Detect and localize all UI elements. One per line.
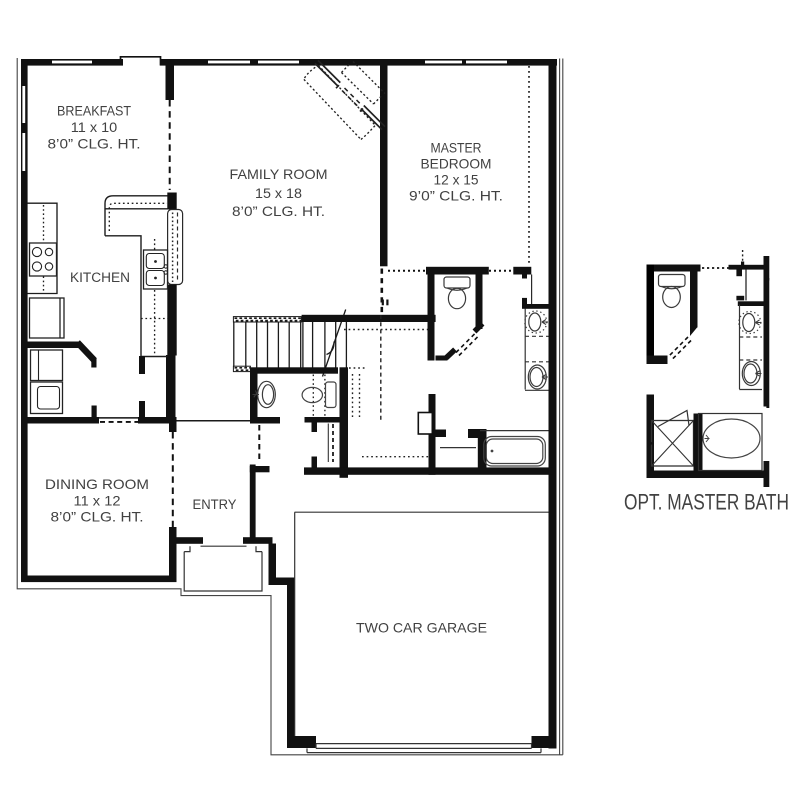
svg-text:11 x 10: 11 x 10	[71, 119, 118, 135]
svg-text:FAMILY ROOM: FAMILY ROOM	[230, 166, 328, 182]
svg-text:9’0” CLG. HT.: 9’0” CLG. HT.	[409, 188, 503, 204]
svg-text:BREAKFAST: BREAKFAST	[57, 103, 131, 119]
svg-text:OPT. MASTER BATH: OPT. MASTER BATH	[624, 490, 789, 515]
svg-text:8’0” CLG. HT.: 8’0” CLG. HT.	[51, 509, 144, 525]
svg-text:ENTRY: ENTRY	[193, 496, 238, 512]
svg-text:12 x 15: 12 x 15	[434, 172, 479, 188]
svg-text:BEDROOM: BEDROOM	[421, 156, 492, 172]
svg-text:TWO CAR GARAGE: TWO CAR GARAGE	[356, 620, 487, 636]
svg-text:11 x 12: 11 x 12	[74, 493, 121, 509]
svg-text:DINING ROOM: DINING ROOM	[45, 476, 149, 492]
svg-text:8’0” CLG. HT.: 8’0” CLG. HT.	[48, 136, 141, 152]
svg-text:15 x 18: 15 x 18	[255, 185, 302, 201]
svg-text:MASTER: MASTER	[431, 140, 482, 156]
svg-text:KITCHEN: KITCHEN	[70, 270, 130, 285]
svg-text:8’0” CLG. HT.: 8’0” CLG. HT.	[232, 203, 325, 219]
